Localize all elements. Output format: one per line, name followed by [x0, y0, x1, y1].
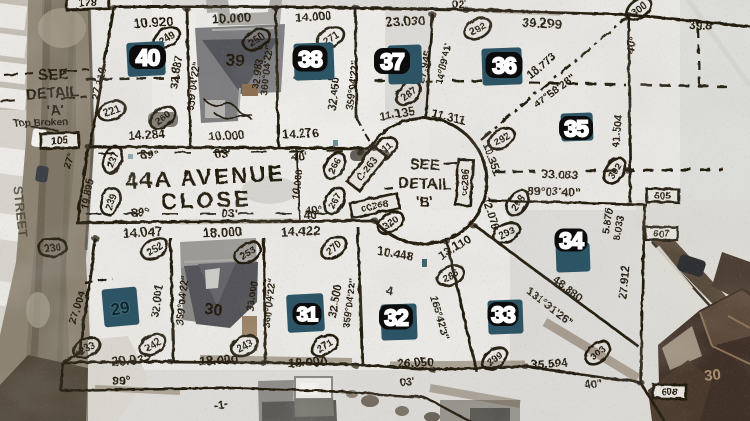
svg-text:32: 32: [384, 304, 408, 330]
svg-text:31: 31: [297, 304, 318, 326]
svg-text:37: 37: [380, 48, 404, 74]
svg-text:29: 29: [109, 298, 131, 320]
svg-text:36: 36: [492, 52, 516, 78]
svg-text:34: 34: [559, 227, 584, 253]
svg-text:40: 40: [136, 44, 160, 70]
svg-text:35: 35: [564, 115, 589, 141]
svg-text:38: 38: [298, 46, 323, 72]
svg-text:33: 33: [491, 301, 515, 327]
